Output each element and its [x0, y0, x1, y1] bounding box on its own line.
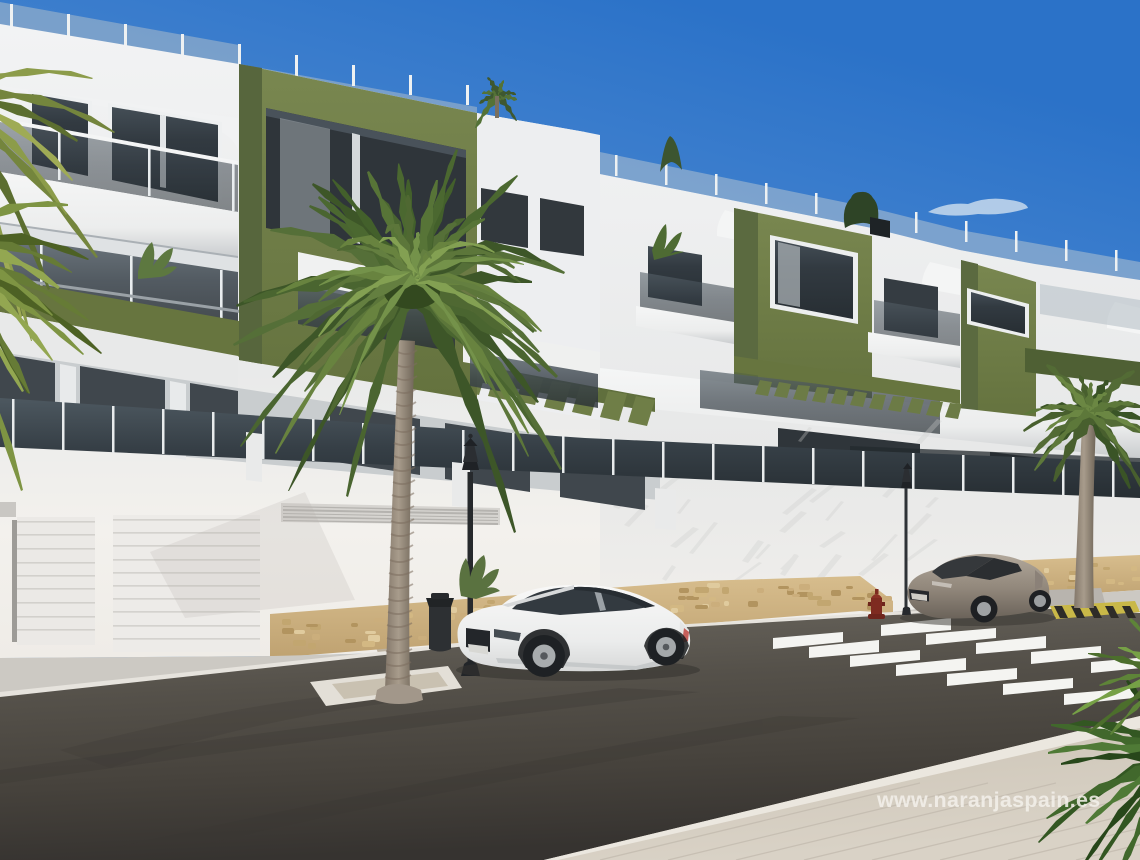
svg-text:www.naranjaspain.es: www.naranjaspain.es	[876, 788, 1101, 812]
